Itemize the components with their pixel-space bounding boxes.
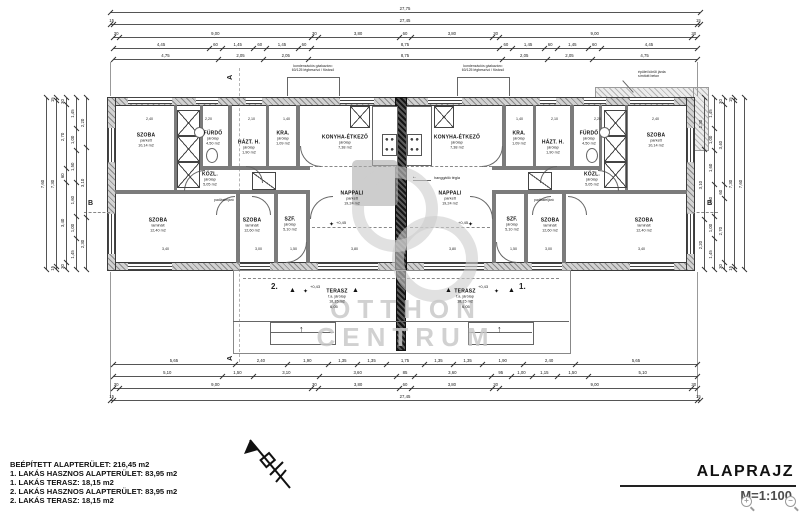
wall-segment xyxy=(296,105,300,166)
room-label: KRA.járólap1,09 m2 xyxy=(276,130,290,145)
door-arc xyxy=(496,242,517,263)
room-label: KÖZL.járólap5,05 m2 xyxy=(202,171,218,186)
window-symbol xyxy=(584,97,606,104)
annotation: 3,80 xyxy=(351,247,358,251)
zoom-out-icon[interactable]: − xyxy=(785,496,796,507)
annotation: A xyxy=(227,356,236,361)
extension-line xyxy=(697,62,698,96)
annotation: padlásfeljáró xyxy=(214,198,234,202)
window-symbol xyxy=(128,263,172,270)
annotation: 2. xyxy=(271,282,278,292)
wardrobe-symbol xyxy=(177,136,200,162)
room-label: KRA.járólap1,09 m2 xyxy=(512,130,526,145)
annotation: kondenzációs gázkazán= 60/125 légbeszívó… xyxy=(462,64,504,73)
room-label: SZF.járólap5,10 m2 xyxy=(505,216,519,231)
window-symbol xyxy=(240,263,270,270)
room-label: SZOBAlaminált12,60 m2 xyxy=(243,217,262,232)
attic-hatch-symbol xyxy=(528,172,552,190)
wall-segment xyxy=(306,194,310,263)
annotation: 2,40 xyxy=(652,117,659,121)
window-symbol xyxy=(128,97,172,104)
annotation: kondenzációs gázkazán= 60/125 légbeszívó… xyxy=(292,64,334,73)
extension-line xyxy=(110,62,111,96)
room-label: KONYHA-ÉTKEZŐjárólap7,38 m2 xyxy=(434,134,480,149)
wall-segment xyxy=(524,194,528,263)
entry-triangle-icon: ▲ xyxy=(445,287,452,294)
section-line-a xyxy=(239,68,240,362)
annotation: 3,00 xyxy=(255,247,262,251)
room-label: TERASZf.a. járólap18,15 m2 xyxy=(326,288,347,303)
drawing-title: ALAPRAJZ xyxy=(697,463,794,481)
window-symbol xyxy=(340,97,374,104)
room-label: SZOBAlaminált12,60 m2 xyxy=(541,217,560,232)
wardrobe-symbol xyxy=(177,162,200,188)
annotation: 6,05 xyxy=(330,304,338,309)
annotation: épület körüli járda símított beton xyxy=(638,70,666,79)
sink-symbol xyxy=(599,127,610,138)
annotation: +0,43 xyxy=(478,284,488,289)
zoom-in-glyph: + xyxy=(744,496,749,505)
star-icon: ✦ xyxy=(468,222,473,228)
star-icon: ✦ xyxy=(494,289,499,295)
area-legend: BEÉPÍTETT ALAPTERÜLET: 216,45 m2 1. LAKÁ… xyxy=(10,460,177,506)
annotation: 2,20 xyxy=(594,117,601,121)
section-line-b xyxy=(84,212,110,213)
up-arrow-icon: ↑ xyxy=(299,325,304,334)
annotation: 2,10 xyxy=(248,117,255,121)
window-symbol xyxy=(687,214,694,254)
star-icon: ✦ xyxy=(329,222,334,228)
legend-line: BEÉPÍTETT ALAPTERÜLET: 216,45 m2 xyxy=(10,460,177,469)
annotation: hanggátló tégla xyxy=(434,176,460,181)
north-arrow-icon xyxy=(228,420,308,500)
floorplan-document: OTTHON CENTRUM xyxy=(0,0,800,514)
room-label: KÖZL.járólap5,05 m2 xyxy=(584,171,600,186)
room-label: HÁZT. H.járólap1,90 m2 xyxy=(238,139,260,154)
terrace-door-symbol xyxy=(318,263,378,270)
entry-triangle-icon: ▲ xyxy=(289,287,296,294)
wall-segment xyxy=(492,194,496,263)
attic-hatch-symbol xyxy=(252,172,276,190)
room-label: NAPPALIparkett19,24 m2 xyxy=(439,190,462,205)
open-boundary xyxy=(406,166,492,167)
toilet-symbol xyxy=(206,148,218,163)
boiler-symbol xyxy=(350,106,370,128)
wardrobe-symbol xyxy=(604,136,627,162)
window-symbol xyxy=(630,263,674,270)
room-label: SZOBAparkett10,14 m2 xyxy=(647,132,666,147)
annotation: 3,40 xyxy=(162,247,169,251)
annotation: +0,43 xyxy=(310,284,320,289)
window-symbol xyxy=(108,128,115,162)
leader-line xyxy=(287,77,288,96)
annotation: 3,00 xyxy=(545,247,552,251)
leader-line xyxy=(457,77,510,78)
annotation: +0,45 xyxy=(458,220,468,225)
annotation: 2,10 xyxy=(551,117,558,121)
boiler-symbol xyxy=(434,106,454,128)
window-symbol xyxy=(196,97,218,104)
door-arc xyxy=(568,196,587,215)
annotation: 3,80 xyxy=(449,247,456,251)
annotation: +0,45 xyxy=(336,220,346,225)
room-label: SZOBAlaminált12,40 m2 xyxy=(149,217,168,232)
room-label: NAPPALIparkett19,24 m2 xyxy=(341,190,364,205)
zoom-in-icon[interactable]: + xyxy=(741,496,752,507)
window-symbol xyxy=(540,97,556,104)
annotation: 1,40 xyxy=(516,117,523,121)
annotation: A xyxy=(227,75,236,80)
legend-line: 2. LAKÁS TERASZ: 18,15 m2 xyxy=(10,496,177,505)
title-underline xyxy=(620,485,796,487)
annotation: 1,40 xyxy=(283,117,290,121)
annotation: 2,40 xyxy=(146,117,153,121)
door-arc xyxy=(470,196,493,219)
legend-line: 1. LAKÁS TERASZ: 18,15 m2 xyxy=(10,478,177,487)
wall-segment xyxy=(502,105,506,166)
leader-line xyxy=(287,77,340,78)
room-label: FÜRDŐjárólap4,50 m2 xyxy=(580,130,599,145)
wall-segment xyxy=(492,190,687,194)
stove-symbol xyxy=(407,134,422,156)
window-symbol xyxy=(630,97,674,104)
leader-line xyxy=(339,77,340,96)
window-symbol xyxy=(687,128,694,162)
entry-triangle-icon: ▲ xyxy=(352,287,359,294)
door-arc xyxy=(252,196,271,215)
annotation: 1,50 xyxy=(290,247,297,251)
annotation: 3,40 xyxy=(638,247,645,251)
room-label: FÜRDŐjárólap4,50 m2 xyxy=(204,130,223,145)
zoom-out-glyph: − xyxy=(788,496,793,505)
annotation: 2,20 xyxy=(205,117,212,121)
wardrobe-symbol xyxy=(604,162,627,188)
leader-line xyxy=(457,77,458,96)
up-arrow-icon: ↑ xyxy=(497,325,502,334)
window-symbol xyxy=(532,263,562,270)
annotation: 6,05 xyxy=(462,304,470,309)
wall-segment xyxy=(228,105,232,166)
legend-line: 1. LAKÁS HASZNOS ALAPTERÜLET: 83,95 m2 xyxy=(10,469,177,478)
room-label: HÁZT. H.járólap1,90 m2 xyxy=(542,139,564,154)
watermark-text: CENTRUM xyxy=(300,322,512,353)
wall-segment xyxy=(266,105,269,166)
room-label: SZF.járólap5,10 m2 xyxy=(283,216,297,231)
door-arc xyxy=(482,146,503,167)
wall-segment xyxy=(274,194,278,263)
wall-segment xyxy=(115,190,310,194)
wall-segment xyxy=(533,105,536,166)
window-symbol xyxy=(246,97,262,104)
entry-triangle-icon: ▲ xyxy=(508,287,515,294)
leader-line xyxy=(509,77,510,96)
room-label: SZOBAlaminált12,40 m2 xyxy=(635,217,654,232)
stove-symbol xyxy=(382,134,397,156)
annotation: B xyxy=(88,200,93,209)
door-arc xyxy=(310,196,333,219)
star-icon: ✦ xyxy=(303,289,308,295)
room-label: KONYHA-ÉTKEZŐjárólap7,38 m2 xyxy=(322,134,368,149)
legend-line: 2. LAKÁS HASZNOS ALAPTERÜLET: 83,95 m2 xyxy=(10,487,177,496)
toilet-symbol xyxy=(586,148,598,163)
annotation: 1. xyxy=(519,282,526,292)
extension-line xyxy=(697,272,698,398)
window-symbol xyxy=(108,214,115,254)
door-arc xyxy=(300,146,321,167)
door-arc xyxy=(286,242,307,263)
wall-segment xyxy=(562,194,566,263)
annotation: padlásfeljáró xyxy=(534,198,554,202)
wall-segment xyxy=(570,105,574,166)
room-label: TERASZf.a. járólap18,15 m2 xyxy=(454,288,475,303)
arrow-left-icon: ← xyxy=(412,175,417,180)
annotation: 1,50 xyxy=(510,247,517,251)
window-symbol xyxy=(428,97,462,104)
room-label: SZOBAparkett10,14 m2 xyxy=(137,132,156,147)
